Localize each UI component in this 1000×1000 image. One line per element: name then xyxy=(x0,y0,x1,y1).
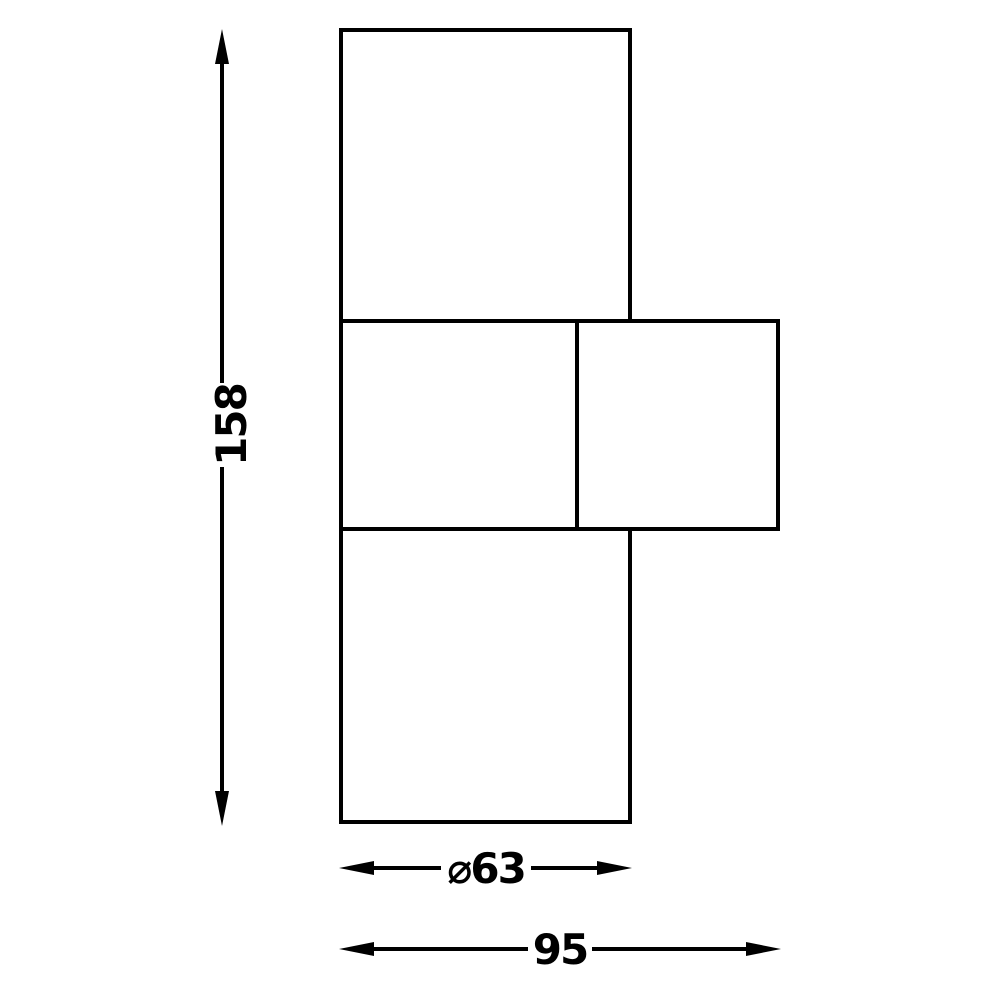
height-dimension: 158 xyxy=(207,29,256,826)
arrow-up-icon xyxy=(215,29,229,64)
fixture-bottom-section xyxy=(341,529,630,822)
arrow-right-icon xyxy=(597,861,632,875)
width-dimension: 95 xyxy=(339,925,781,974)
height-dimension-label: 158 xyxy=(207,384,256,466)
arrow-left-icon xyxy=(339,942,374,956)
arrow-down-icon xyxy=(215,791,229,826)
arrow-left-icon xyxy=(339,861,374,875)
drawing-canvas: 158 ⌀63 95 xyxy=(0,0,1000,1000)
fixture-top-section xyxy=(341,30,630,321)
fixture-middle-right-section xyxy=(577,321,778,529)
dimension-drawing: 158 ⌀63 95 xyxy=(0,0,1000,1000)
width-dimension-label: 95 xyxy=(533,925,587,974)
diameter-dimension-label: ⌀63 xyxy=(447,844,525,893)
fixture-middle-left-section xyxy=(341,321,577,529)
diameter-dimension: ⌀63 xyxy=(339,844,632,893)
arrow-right-icon xyxy=(746,942,781,956)
fixture-outline xyxy=(341,30,778,822)
